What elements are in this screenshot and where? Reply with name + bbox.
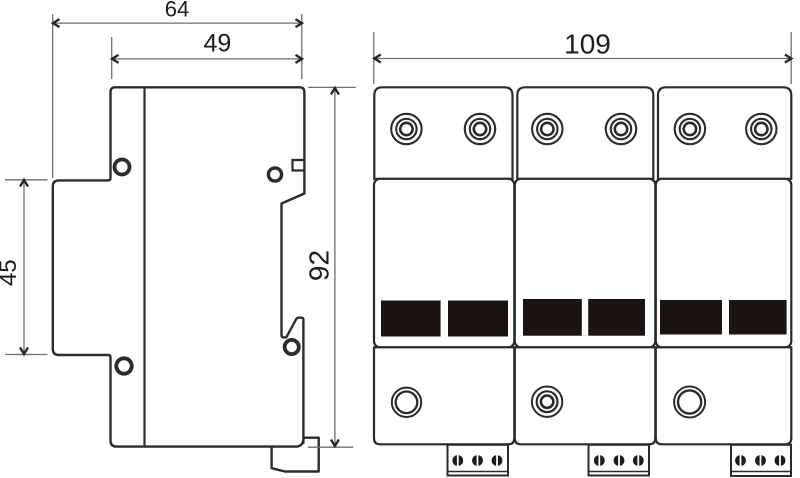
svg-text:92: 92 [304, 250, 335, 281]
svg-text:64: 64 [165, 0, 189, 22]
svg-text:45: 45 [0, 259, 22, 286]
svg-text:49: 49 [203, 30, 231, 58]
svg-text:109: 109 [564, 29, 611, 60]
